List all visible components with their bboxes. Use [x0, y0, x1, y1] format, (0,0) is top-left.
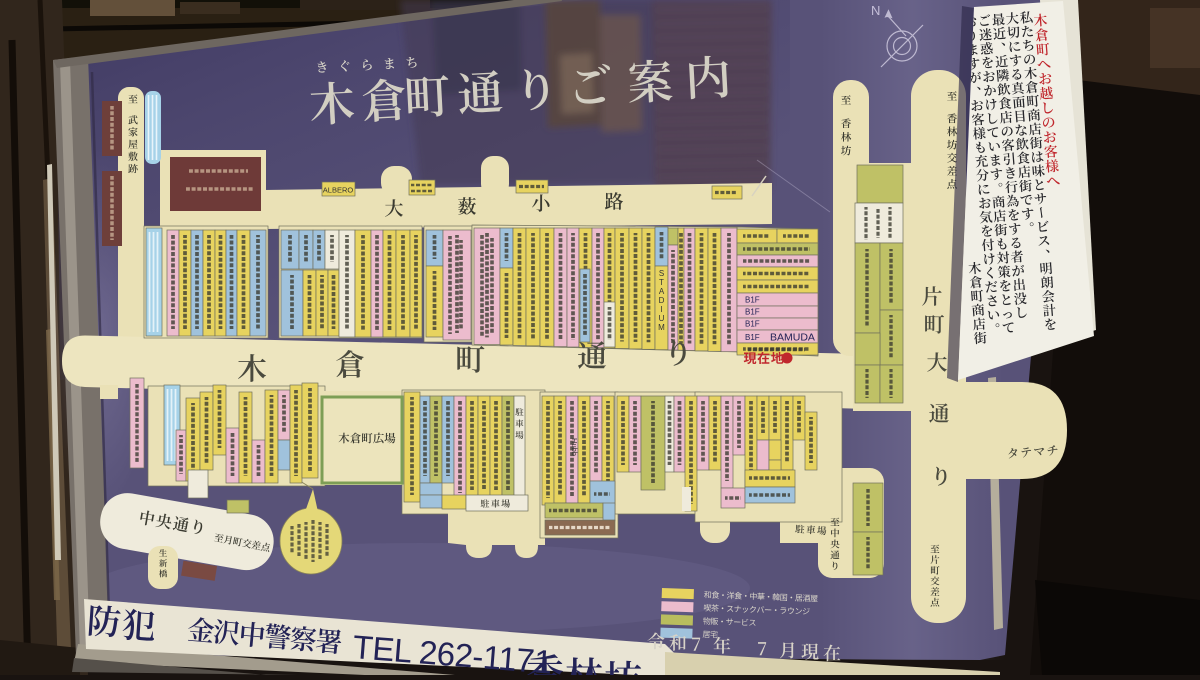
- svg-text:N: N: [871, 3, 880, 18]
- svg-text:B1F: B1F: [745, 333, 760, 342]
- svg-text:S: S: [659, 269, 664, 278]
- svg-text:ALBERO: ALBERO: [323, 186, 354, 195]
- svg-text:B1F: B1F: [745, 296, 760, 305]
- svg-text:T: T: [659, 278, 664, 287]
- svg-text:A: A: [659, 287, 665, 296]
- svg-text:Hubb: Hubb: [570, 438, 579, 456]
- svg-text:B1F: B1F: [745, 308, 760, 317]
- svg-text:B1F: B1F: [745, 320, 760, 329]
- svg-text:M: M: [658, 323, 665, 332]
- svg-text:D: D: [659, 296, 665, 305]
- svg-text:I: I: [660, 305, 662, 314]
- svg-text:U: U: [659, 314, 665, 323]
- svg-text:BAMUDA: BAMUDA: [770, 332, 815, 344]
